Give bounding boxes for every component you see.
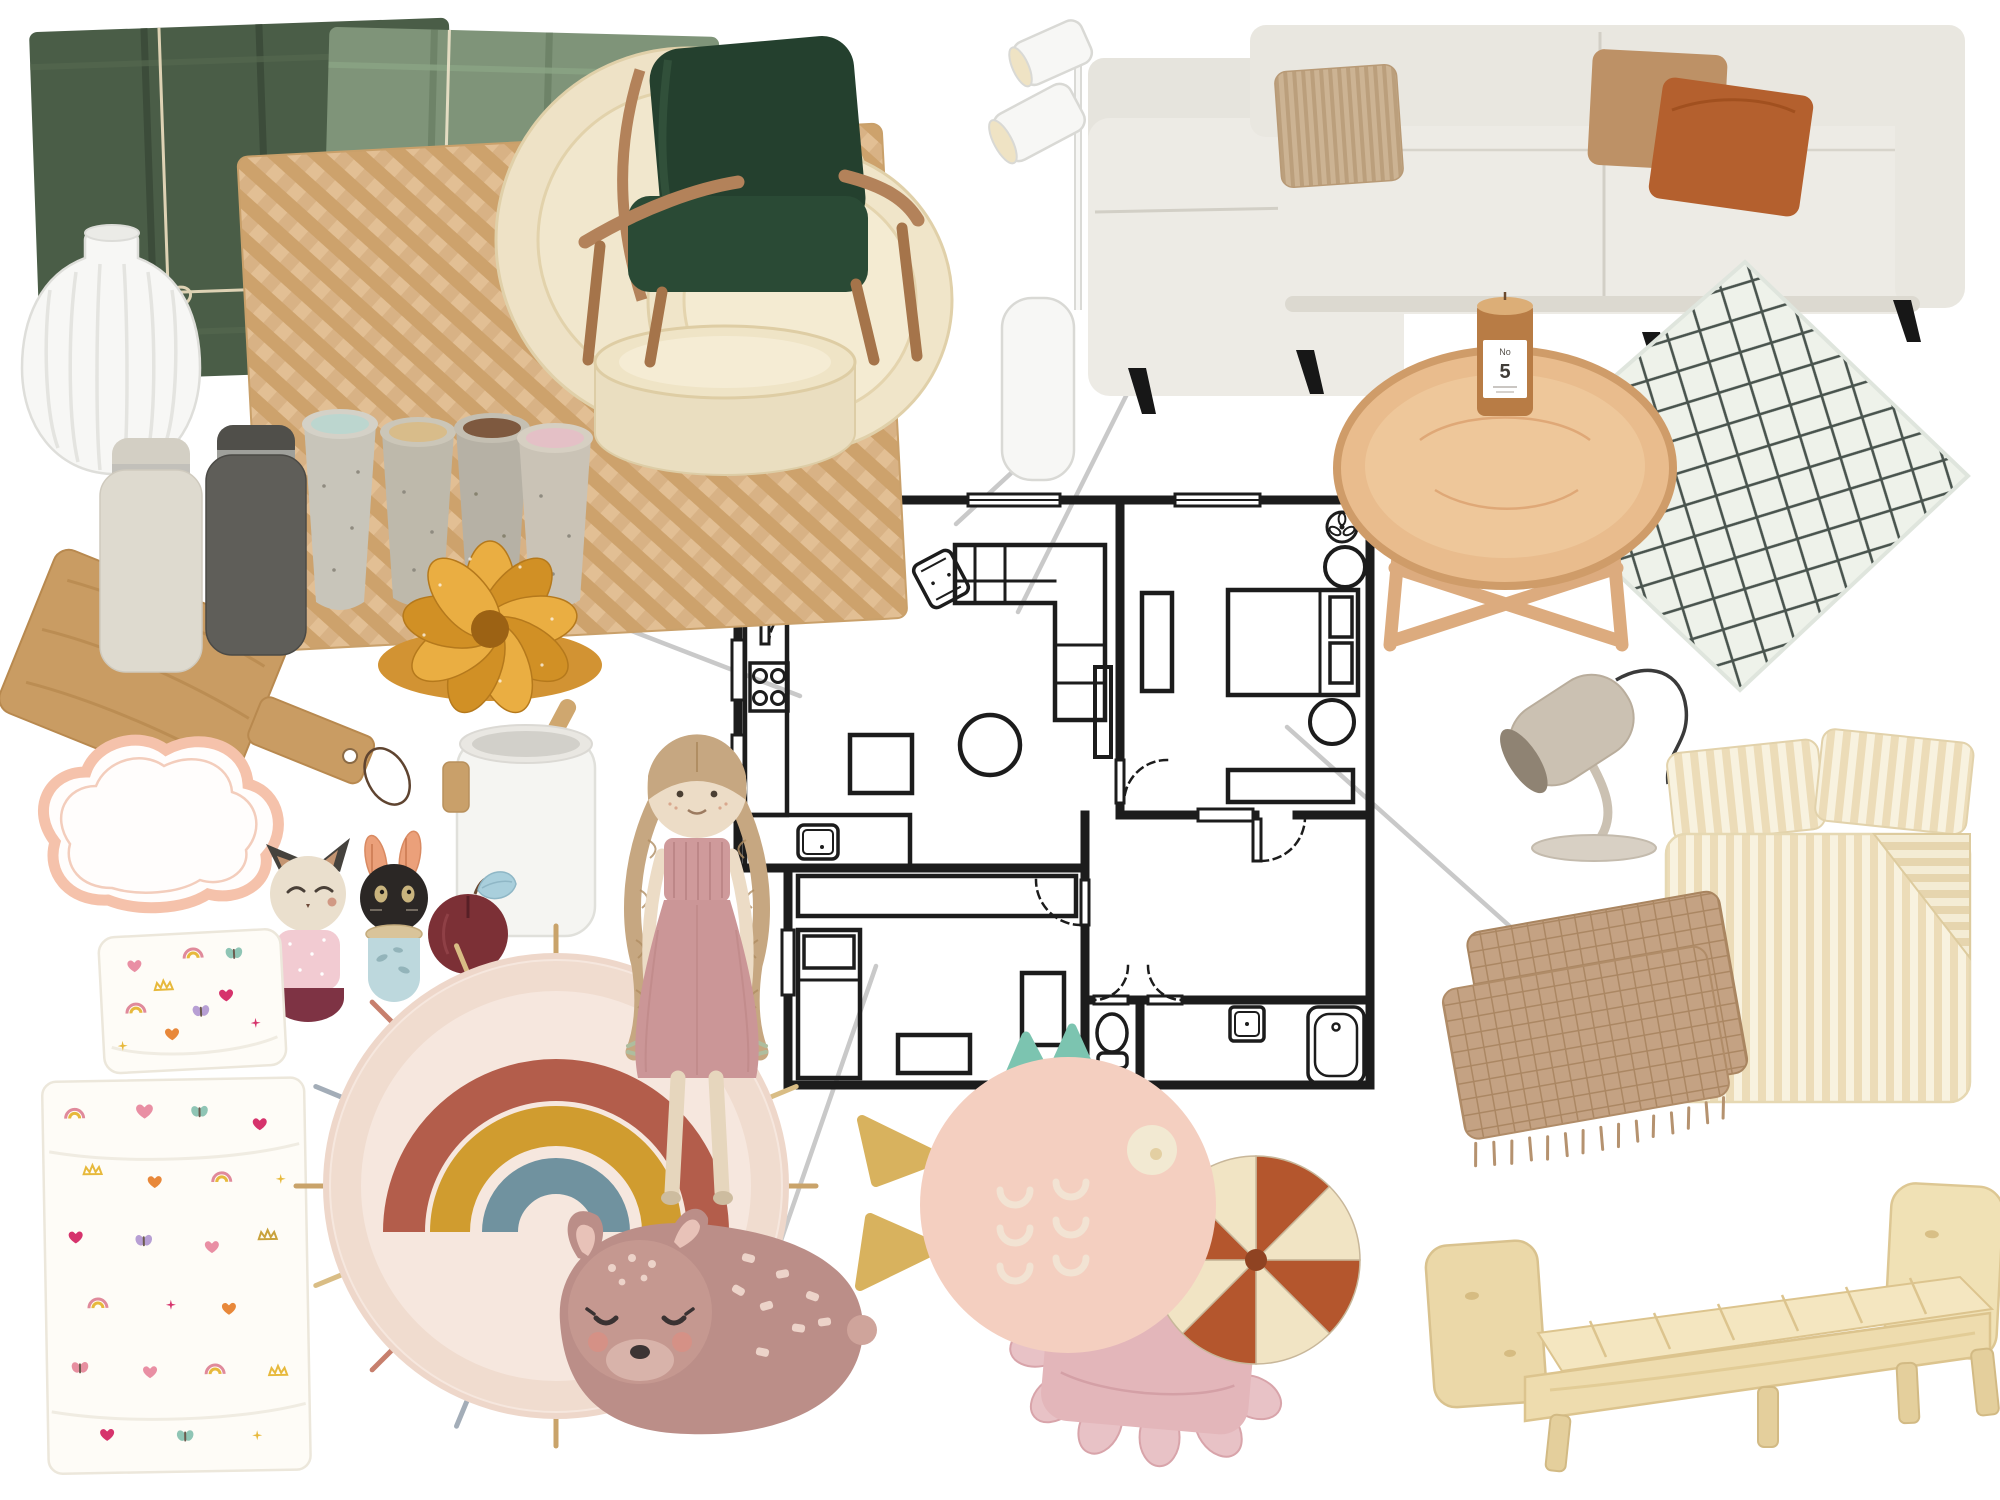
floor-lamp <box>983 17 1096 480</box>
holder-wood-hook <box>443 762 469 812</box>
patch-cushion-button <box>1245 1249 1267 1271</box>
mood-board-canvas: No 5 <box>0 0 2000 1500</box>
grinder-grey <box>206 425 306 655</box>
sofa-arm-right <box>1895 50 1965 308</box>
linen-pillow-right <box>1814 728 1975 835</box>
candle: No 5 <box>1477 292 1533 416</box>
linen-pillow-left <box>1666 738 1827 843</box>
fish-body <box>920 1057 1216 1353</box>
deer-rug <box>560 1209 877 1435</box>
candle-label-number: 5 <box>1499 361 1510 383</box>
mood-board: No 5 <box>0 0 2000 1500</box>
board-handle <box>245 694 377 786</box>
candle-label-top: No <box>1499 347 1511 357</box>
plan-bathroom <box>1085 966 1370 1085</box>
plan-toilet-icon <box>1097 1014 1127 1068</box>
plan-kitchen <box>732 598 912 868</box>
lamp-base <box>1002 298 1074 480</box>
cushion-rust <box>1647 76 1814 218</box>
toy-bunny <box>360 830 428 1002</box>
connector-bedroom <box>1287 727 1543 956</box>
fish-cushion <box>860 1028 1216 1353</box>
desk-lamp-shade <box>1488 659 1649 804</box>
throw <box>1432 890 1759 1173</box>
armchair-seat-cushion <box>628 196 868 292</box>
kids-pillow <box>98 928 287 1073</box>
plan-bathtub-icon <box>1308 1007 1364 1083</box>
bowl <box>595 326 855 475</box>
desk-lamp <box>1488 659 1686 861</box>
kids-sheet <box>42 1077 311 1474</box>
cloud-shelf <box>43 740 278 908</box>
grinder-white <box>100 438 202 672</box>
plan-basin-icon <box>1230 1007 1264 1041</box>
lamp-head-lower <box>983 79 1090 169</box>
desk-lamp-base <box>1532 835 1656 861</box>
cushion-corduroy <box>1274 64 1404 188</box>
bed <box>1424 1182 2000 1472</box>
